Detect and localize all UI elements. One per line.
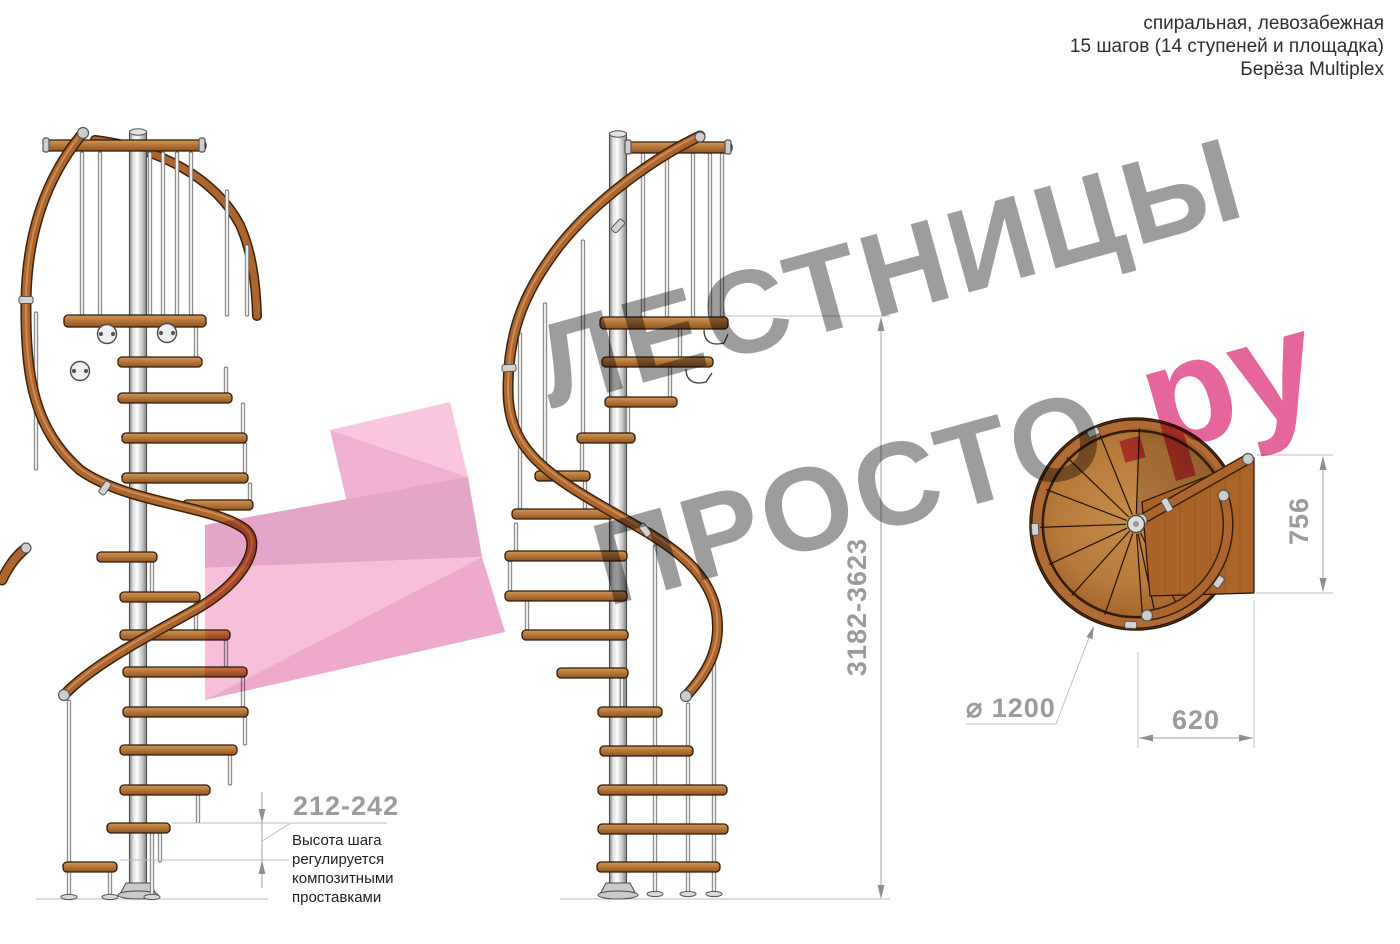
left-spiral-handrail (2, 128, 252, 701)
drawing-sheet: 3182-3623 756 620 ⌀ 1200 (0, 0, 1400, 944)
step-rise-note: Высота шага регулируется композитными пр… (292, 831, 394, 907)
title-block: спиральная, левозабежная 15 шагов (14 ст… (1070, 12, 1384, 81)
left-staircase-side-view (2, 128, 257, 900)
dimension-total-height: 3182-3623 (842, 317, 885, 899)
note-line-4: проставками (292, 888, 394, 907)
diameter-value: ⌀ 1200 (966, 693, 1056, 723)
note-line-2: регулируется (292, 850, 394, 869)
staircase-technical-drawing: 3182-3623 756 620 ⌀ 1200 (0, 0, 1400, 944)
dimension-diameter: ⌀ 1200 (966, 626, 1094, 724)
right-steps (505, 317, 728, 872)
title-line-steps: 15 шагов (14 ступеней и площадка) (1070, 35, 1384, 58)
total-height-value: 3182-3623 (842, 538, 872, 676)
left-pole-flanges (71, 324, 177, 381)
landing-depth-value: 756 (1284, 497, 1314, 545)
right-staircase-side-view (502, 131, 732, 899)
plan-center-pole (1128, 516, 1145, 533)
top-view-plan (1030, 418, 1254, 630)
landing-width-value: 620 (1172, 705, 1220, 735)
note-line-3: композитными (292, 869, 394, 888)
title-line-type: спиральная, левозабежная (1070, 12, 1384, 35)
dimension-landing-depth: 756 (1256, 455, 1333, 593)
note-line-1: Высота шага (292, 831, 394, 850)
title-line-material: Берёза Multiplex (1070, 58, 1384, 81)
step-rise-value: 212-242 (293, 791, 399, 821)
